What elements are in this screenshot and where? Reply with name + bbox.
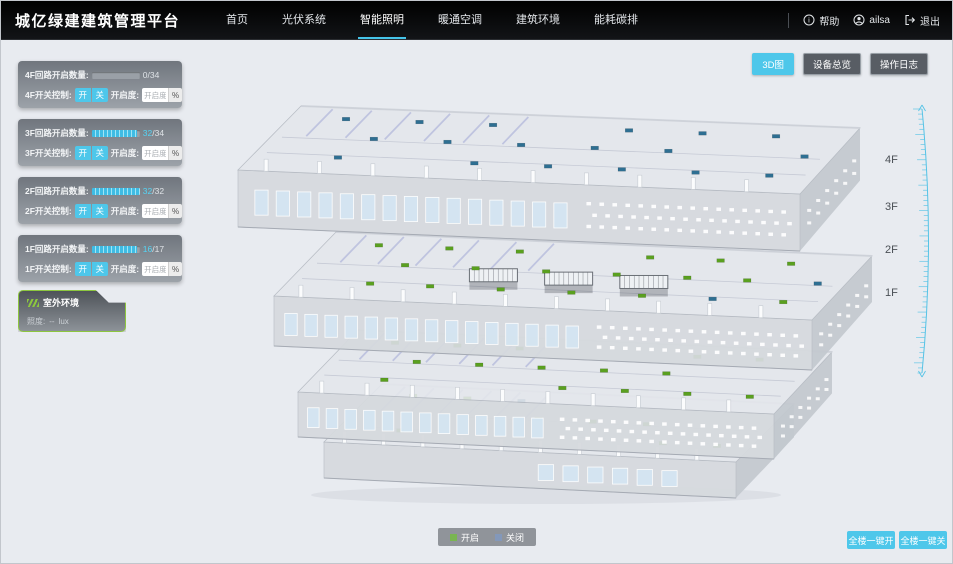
- light-marker: [801, 155, 809, 159]
- main-nav: 首页光伏系统智能照明暖通空调建筑环境能耗碳排: [224, 1, 640, 39]
- light-marker: [684, 392, 692, 396]
- all-on-button[interactable]: 全楼一键开: [847, 531, 895, 549]
- view-toolbar: 3D图 设备总览 操作日志: [752, 53, 928, 75]
- dim-input[interactable]: [142, 204, 168, 218]
- status-legend: 开启关闭: [438, 528, 536, 546]
- light-marker: [381, 378, 389, 382]
- light-marker: [446, 247, 454, 251]
- light-marker: [559, 386, 567, 390]
- light-marker: [591, 146, 599, 150]
- slashes-icon: [27, 299, 39, 307]
- percent-button[interactable]: %: [168, 262, 182, 276]
- legend-item-0: 开启: [450, 531, 479, 544]
- light-marker: [538, 366, 546, 370]
- circuit-ratio: 16/17: [143, 244, 164, 254]
- percent-button[interactable]: %: [168, 88, 182, 102]
- circuit-count-label: 4F回路开启数量:: [25, 69, 89, 81]
- view-3d-button[interactable]: 3D图: [752, 53, 794, 75]
- nav-item-4[interactable]: 建筑环境: [514, 1, 562, 39]
- username: ailsa: [869, 15, 890, 26]
- illuminance-value: --: [49, 317, 54, 326]
- light-marker: [416, 120, 424, 124]
- dim-input[interactable]: [142, 262, 168, 276]
- dim-label: 开启度:: [111, 147, 139, 159]
- dim-label: 开启度:: [111, 89, 139, 101]
- logout-label: 退出: [920, 13, 940, 28]
- light-marker: [709, 297, 717, 301]
- floor-panel-3f: 3F回路开启数量:32/343F开关控制:开关开启度:%: [18, 119, 182, 166]
- floor-panel-2f: 2F回路开启数量:32/322F开关控制:开关开启度:%: [18, 177, 182, 224]
- switch-on-button[interactable]: 开: [75, 204, 91, 218]
- light-marker: [497, 288, 505, 292]
- logout-link[interactable]: 退出: [904, 13, 940, 28]
- switch-on-button[interactable]: 开: [75, 88, 91, 102]
- light-marker: [699, 132, 707, 136]
- light-marker: [766, 174, 774, 178]
- app-root: 城亿绿建建筑管理平台 首页光伏系统智能照明暖通空调建筑环境能耗碳排 i 帮助 a…: [0, 0, 953, 564]
- header-right: i 帮助 ailsa 退出: [788, 13, 940, 28]
- light-marker: [471, 161, 479, 165]
- light-marker: [517, 143, 525, 147]
- light-marker: [516, 250, 524, 254]
- switch-on-button[interactable]: 开: [75, 146, 91, 160]
- nav-item-2[interactable]: 智能照明: [358, 1, 406, 39]
- circuit-count-label: 3F回路开启数量:: [25, 127, 89, 139]
- light-marker: [568, 291, 576, 295]
- light-marker: [366, 282, 374, 286]
- switch-off-button[interactable]: 关: [92, 146, 108, 160]
- logout-icon: [904, 14, 916, 26]
- light-marker: [683, 276, 691, 280]
- light-marker: [717, 259, 725, 263]
- light-marker: [814, 282, 822, 286]
- nav-item-3[interactable]: 暖通空调: [436, 1, 484, 39]
- dim-input[interactable]: [142, 146, 168, 160]
- help-label: 帮助: [819, 13, 839, 28]
- legend-swatch: [450, 534, 457, 541]
- light-marker: [618, 168, 626, 172]
- switch-control-label: 2F开关控制:: [25, 205, 72, 217]
- circuit-progress-bar: [92, 130, 140, 137]
- light-marker: [544, 165, 552, 169]
- light-marker: [779, 300, 787, 304]
- switch-control-label: 3F开关控制:: [25, 147, 72, 159]
- circuit-progress-bar: [92, 72, 140, 79]
- light-marker: [444, 140, 452, 144]
- help-link[interactable]: i 帮助: [803, 13, 839, 28]
- switch-off-button[interactable]: 关: [92, 88, 108, 102]
- light-marker: [638, 294, 646, 298]
- circuit-ratio: 32/34: [143, 128, 164, 138]
- help-icon: i: [803, 14, 815, 26]
- legend-swatch: [495, 534, 502, 541]
- scene-floor-label-3f: 3F: [885, 201, 898, 213]
- circuit-progress-bar: [92, 188, 140, 195]
- circuit-progress-bar: [92, 246, 140, 253]
- switch-off-button[interactable]: 关: [92, 204, 108, 218]
- floor-panel-1f: 1F回路开启数量:16/171F开关控制:开关开启度:%: [18, 235, 182, 282]
- light-marker: [625, 129, 633, 133]
- scene-floor-label-1f: 1F: [885, 287, 898, 299]
- light-marker: [772, 134, 780, 138]
- switch-control-label: 1F开关控制:: [25, 263, 72, 275]
- top-bar: 城亿绿建建筑管理平台 首页光伏系统智能照明暖通空调建筑环境能耗碳排 i 帮助 a…: [1, 1, 952, 40]
- light-marker: [663, 372, 671, 376]
- circuit-count-label: 2F回路开启数量:: [25, 185, 89, 197]
- circuit-ratio: 32/32: [143, 186, 164, 196]
- light-marker: [665, 149, 673, 153]
- illuminance-unit: lux: [59, 317, 69, 326]
- circuit-ratio: 0/34: [143, 70, 160, 80]
- circuit-count-label: 1F回路开启数量:: [25, 243, 89, 255]
- light-marker: [370, 137, 378, 141]
- light-marker: [692, 171, 700, 175]
- outdoor-title: 室外环境: [43, 296, 79, 309]
- scene-floor-label-2f: 2F: [885, 244, 898, 256]
- scene-floor-label-4f: 4F: [885, 154, 898, 166]
- light-marker: [401, 263, 409, 267]
- floor-panel-4f: 4F回路开启数量:0/344F开关控制:开关开启度:%: [18, 61, 182, 108]
- light-marker: [426, 284, 434, 288]
- nav-item-0[interactable]: 首页: [224, 1, 250, 39]
- switch-on-button[interactable]: 开: [75, 262, 91, 276]
- all-off-button[interactable]: 全楼一键关: [899, 531, 947, 549]
- percent-button[interactable]: %: [168, 146, 182, 160]
- nav-item-1[interactable]: 光伏系统: [280, 1, 328, 39]
- light-marker: [375, 243, 383, 247]
- divider: [788, 13, 789, 28]
- user-icon: [853, 14, 865, 26]
- switch-control-label: 4F开关控制:: [25, 89, 72, 101]
- user-menu[interactable]: ailsa: [853, 14, 890, 26]
- light-marker: [600, 369, 608, 373]
- light-marker: [613, 273, 621, 277]
- dim-input[interactable]: [142, 88, 168, 102]
- light-marker: [743, 279, 751, 283]
- floor-ruler: [913, 105, 929, 377]
- dim-label: 开启度:: [111, 205, 139, 217]
- light-marker: [746, 395, 754, 399]
- light-marker: [475, 363, 483, 367]
- light-marker: [489, 123, 497, 127]
- nav-item-5[interactable]: 能耗碳排: [592, 1, 640, 39]
- operation-log-button[interactable]: 操作日志: [870, 53, 928, 75]
- light-marker: [342, 117, 350, 121]
- dim-label: 开启度:: [111, 263, 139, 275]
- percent-button[interactable]: %: [168, 204, 182, 218]
- light-marker: [621, 389, 629, 393]
- illuminance-label: 照度:: [27, 316, 45, 327]
- switch-off-button[interactable]: 关: [92, 262, 108, 276]
- svg-text:i: i: [809, 16, 811, 25]
- light-marker: [334, 156, 342, 160]
- light-marker: [413, 360, 421, 364]
- light-marker: [472, 266, 480, 270]
- global-control-buttons: 全楼一键开 全楼一键关: [847, 531, 947, 549]
- device-overview-button[interactable]: 设备总览: [803, 53, 861, 75]
- legend-item-1: 关闭: [495, 531, 524, 544]
- light-marker: [646, 256, 654, 260]
- light-marker: [542, 270, 550, 274]
- page-title: 城亿绿建建筑管理平台: [15, 10, 180, 31]
- light-marker: [787, 262, 795, 266]
